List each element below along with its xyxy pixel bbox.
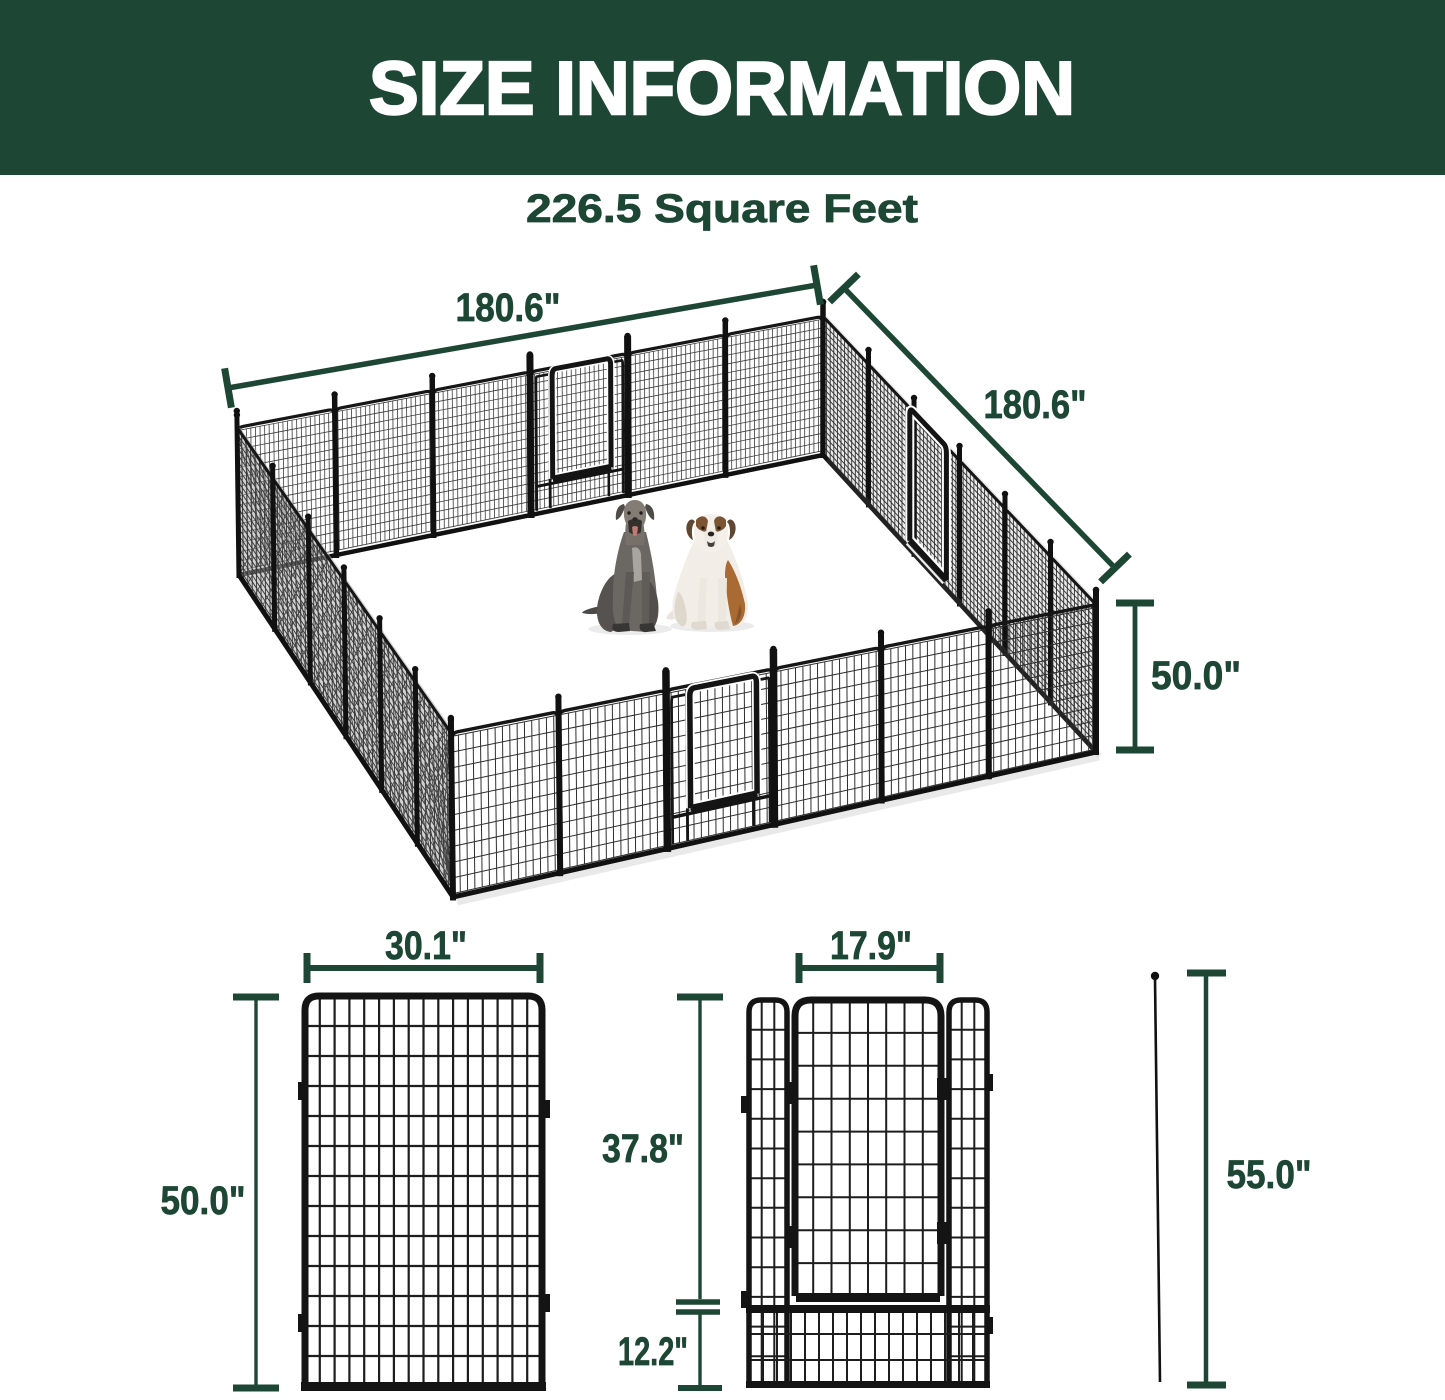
svg-text:17.9": 17.9"	[830, 924, 912, 968]
svg-text:50.0": 50.0"	[161, 1179, 246, 1223]
svg-text:SIZE INFORMATION: SIZE INFORMATION	[369, 46, 1075, 130]
svg-text:180.6": 180.6"	[984, 383, 1087, 427]
svg-text:226.5 Square Feet: 226.5 Square Feet	[526, 187, 918, 231]
svg-text:180.6": 180.6"	[456, 286, 561, 330]
svg-text:12.2": 12.2"	[618, 1330, 688, 1374]
svg-text:37.8": 37.8"	[602, 1127, 684, 1171]
svg-text:55.0": 55.0"	[1227, 1153, 1312, 1197]
svg-text:30.1": 30.1"	[385, 924, 467, 968]
svg-text:50.0": 50.0"	[1151, 654, 1241, 698]
